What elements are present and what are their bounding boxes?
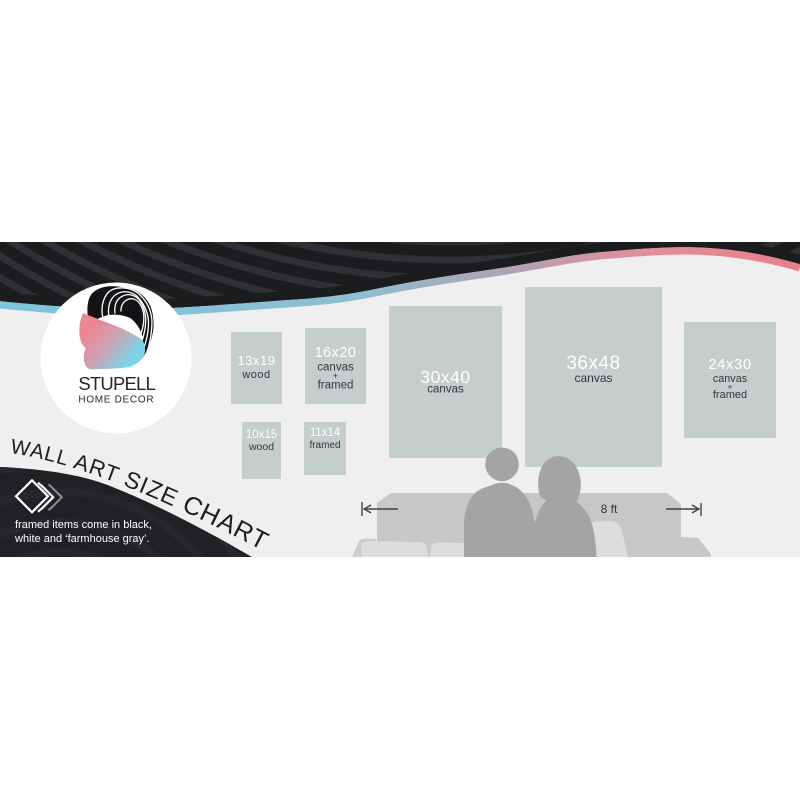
svg-text:canvas: canvas xyxy=(427,384,464,396)
svg-text:24x30: 24x30 xyxy=(708,356,751,373)
svg-text:white and ‘farmhouse gray’.: white and ‘farmhouse gray’. xyxy=(14,533,150,545)
svg-text:HOME DECOR: HOME DECOR xyxy=(78,395,154,406)
svg-text:framed: framed xyxy=(713,389,747,401)
svg-text:16x20: 16x20 xyxy=(314,345,356,361)
svg-text:framed: framed xyxy=(318,380,354,392)
svg-text:wood: wood xyxy=(241,369,270,381)
svg-text:10x15: 10x15 xyxy=(246,429,277,441)
svg-text:8 ft: 8 ft xyxy=(601,502,618,516)
svg-text:wood: wood xyxy=(248,441,274,453)
svg-text:13x19: 13x19 xyxy=(238,353,276,368)
svg-text:STUPELL: STUPELL xyxy=(78,373,155,394)
svg-text:canvas: canvas xyxy=(574,371,612,385)
svg-text:framed: framed xyxy=(309,440,340,451)
svg-text:11x14: 11x14 xyxy=(310,427,341,439)
svg-text:framed items come in black,: framed items come in black, xyxy=(15,519,152,531)
